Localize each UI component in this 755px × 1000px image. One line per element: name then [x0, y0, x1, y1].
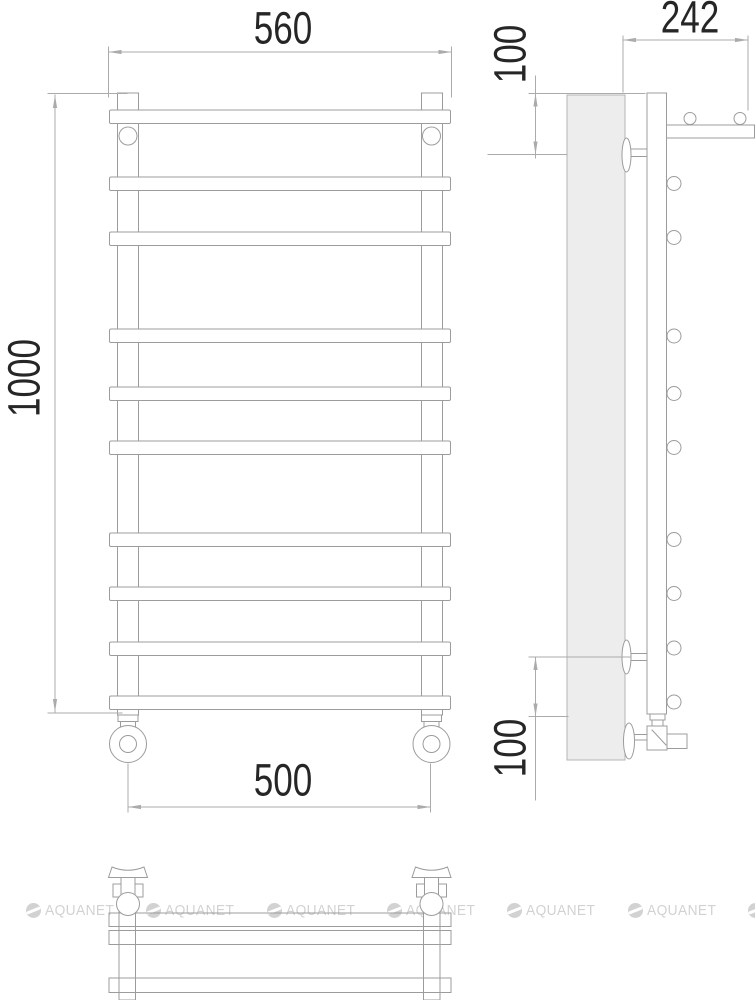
shelf-bars-top — [109, 913, 451, 993]
side-bottom-valve — [624, 714, 688, 759]
top-wall-bracket — [622, 138, 647, 172]
dim-560 — [109, 47, 452, 97]
dim-label-560: 560 — [254, 6, 313, 51]
dim-label-242: 242 — [661, 0, 720, 40]
right-tube-section — [424, 912, 441, 1000]
left-tube-section — [119, 912, 136, 1000]
shelf-arm — [667, 113, 755, 139]
left-bottom-valve — [110, 715, 147, 763]
right-bottom-valve — [413, 715, 450, 763]
dim-label-100-top: 100 — [488, 25, 533, 84]
rungs — [110, 110, 451, 710]
top-view — [109, 867, 452, 1000]
right-bracket-boss — [423, 127, 441, 145]
front-view — [110, 93, 451, 763]
technical-drawing-page: AQUANET AQUANET AQUANET AQUANET AQUANET … — [0, 0, 755, 1000]
right-valve-top — [412, 867, 451, 916]
wall — [567, 95, 625, 760]
left-bracket-boss — [119, 127, 137, 145]
dim-label-100-bottom: 100 — [488, 719, 533, 778]
left-valve-top — [109, 867, 148, 916]
rung-sections — [667, 177, 681, 710]
dim-label-1000: 1000 — [2, 339, 47, 417]
towel-rail-views — [0, 0, 755, 1000]
side-view — [567, 93, 755, 760]
dim-242 — [623, 36, 748, 110]
riser-tube — [647, 93, 667, 714]
dim-label-500: 500 — [254, 758, 313, 803]
